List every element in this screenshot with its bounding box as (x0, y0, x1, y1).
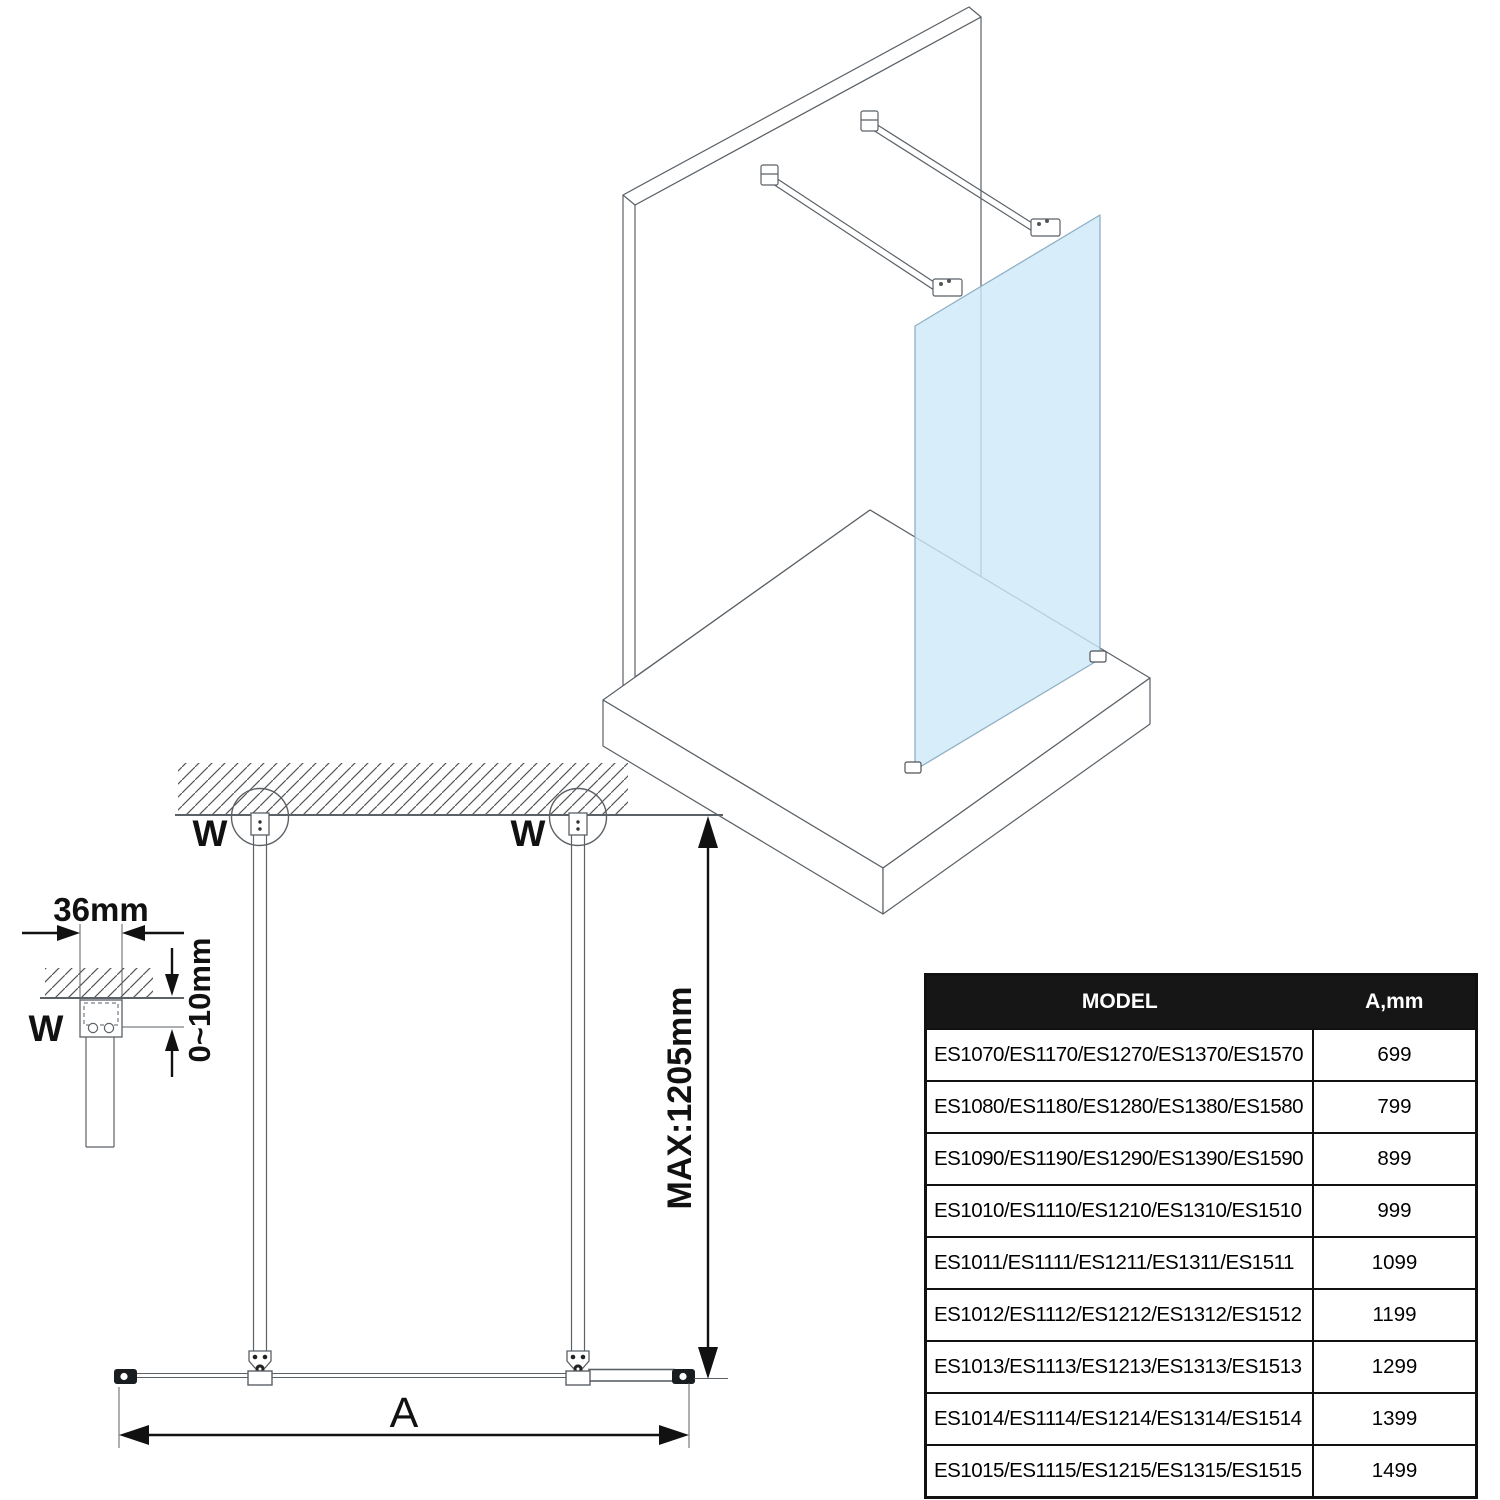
label-a: A (390, 1389, 419, 1437)
a-mm-cell: 1499 (1313, 1445, 1477, 1498)
table-row: ES1013/ES1113/ES1213/ES1313/ES15131299 (926, 1341, 1477, 1393)
label-w-right: W (511, 813, 546, 854)
plan-clamp-left (248, 1351, 272, 1385)
wall-hatch (178, 763, 628, 815)
label-w-detail: W (29, 1008, 64, 1049)
table-row: ES1090/ES1190/ES1290/ES1390/ES1590899 (926, 1133, 1477, 1185)
model-cell: ES1015/ES1115/ES1215/ES1315/ES1515 (926, 1445, 1313, 1498)
technical-drawing-sheet: 36mm W 0~10mm W W MAX:1205mm A MODEL A,m… (0, 0, 1500, 1500)
model-cell: ES1014/ES1114/ES1214/ES1314/ES1514 (926, 1393, 1313, 1445)
dimension-max-height (694, 816, 728, 1379)
table-row: ES1014/ES1114/ES1214/ES1314/ES15141399 (926, 1393, 1477, 1445)
model-cell: ES1080/ES1180/ES1280/ES1380/ES1580 (926, 1081, 1313, 1133)
header-model: MODEL (926, 975, 1313, 1030)
model-dimension-table: MODEL A,mm ES1070/ES1170/ES1270/ES1370/E… (924, 973, 1478, 1499)
a-mm-cell: 899 (1313, 1133, 1477, 1185)
model-cell: ES1070/ES1170/ES1270/ES1370/ES1570 (926, 1029, 1313, 1081)
a-mm-cell: 1299 (1313, 1341, 1477, 1393)
a-mm-cell: 799 (1313, 1081, 1477, 1133)
wall-bracket-near (761, 165, 778, 185)
table-row: ES1010/ES1110/ES1210/ES1310/ES1510999 (926, 1185, 1477, 1237)
model-cell: ES1011/ES1111/ES1211/ES1311/ES1511 (926, 1237, 1313, 1289)
detail-bar (86, 1037, 114, 1147)
label-max-height: MAX:1205mm (661, 987, 699, 1210)
model-cell: ES1010/ES1110/ES1210/ES1310/ES1510 (926, 1185, 1313, 1237)
plan-profile-bar (589, 1370, 674, 1382)
plan-bar-right (550, 789, 607, 1352)
a-mm-cell: 1099 (1313, 1237, 1477, 1289)
plan-view (114, 763, 723, 1385)
table-header-row: MODEL A,mm (926, 975, 1477, 1030)
dimension-0-10mm (165, 948, 179, 1077)
a-mm-cell: 999 (1313, 1185, 1477, 1237)
table-row: ES1012/ES1112/ES1212/ES1312/ES15121199 (926, 1289, 1477, 1341)
label-w-left: W (193, 813, 228, 854)
label-0-10mm: 0~10mm (182, 938, 217, 1063)
plan-clamp-right (566, 1351, 590, 1385)
table-row: ES1070/ES1170/ES1270/ES1370/ES1570699 (926, 1029, 1477, 1081)
header-a-mm: A,mm (1313, 975, 1477, 1030)
screw-hole (104, 1023, 113, 1032)
label-36mm: 36mm (53, 891, 148, 928)
detail-wall-hatch (45, 968, 153, 998)
table-row: ES1011/ES1111/ES1211/ES1311/ES15111099 (926, 1237, 1477, 1289)
detail-bracket (80, 1000, 122, 1037)
model-cell: ES1013/ES1113/ES1213/ES1313/ES1513 (926, 1341, 1313, 1393)
a-mm-cell: 1199 (1313, 1289, 1477, 1341)
wall-bracket-far (861, 111, 878, 131)
model-cell: ES1090/ES1190/ES1290/ES1390/ES1590 (926, 1133, 1313, 1185)
a-mm-cell: 1399 (1313, 1393, 1477, 1445)
screw-hole (88, 1023, 97, 1032)
model-cell: ES1012/ES1112/ES1212/ES1312/ES1512 (926, 1289, 1313, 1341)
table-row: ES1080/ES1180/ES1280/ES1380/ES1580799 (926, 1081, 1477, 1133)
table-row: ES1015/ES1115/ES1215/ES1315/ES15151499 (926, 1445, 1477, 1498)
plan-glass (136, 1370, 674, 1382)
isometric-view (603, 7, 1150, 914)
plan-bar-left (232, 789, 289, 1352)
a-mm-cell: 699 (1313, 1029, 1477, 1081)
